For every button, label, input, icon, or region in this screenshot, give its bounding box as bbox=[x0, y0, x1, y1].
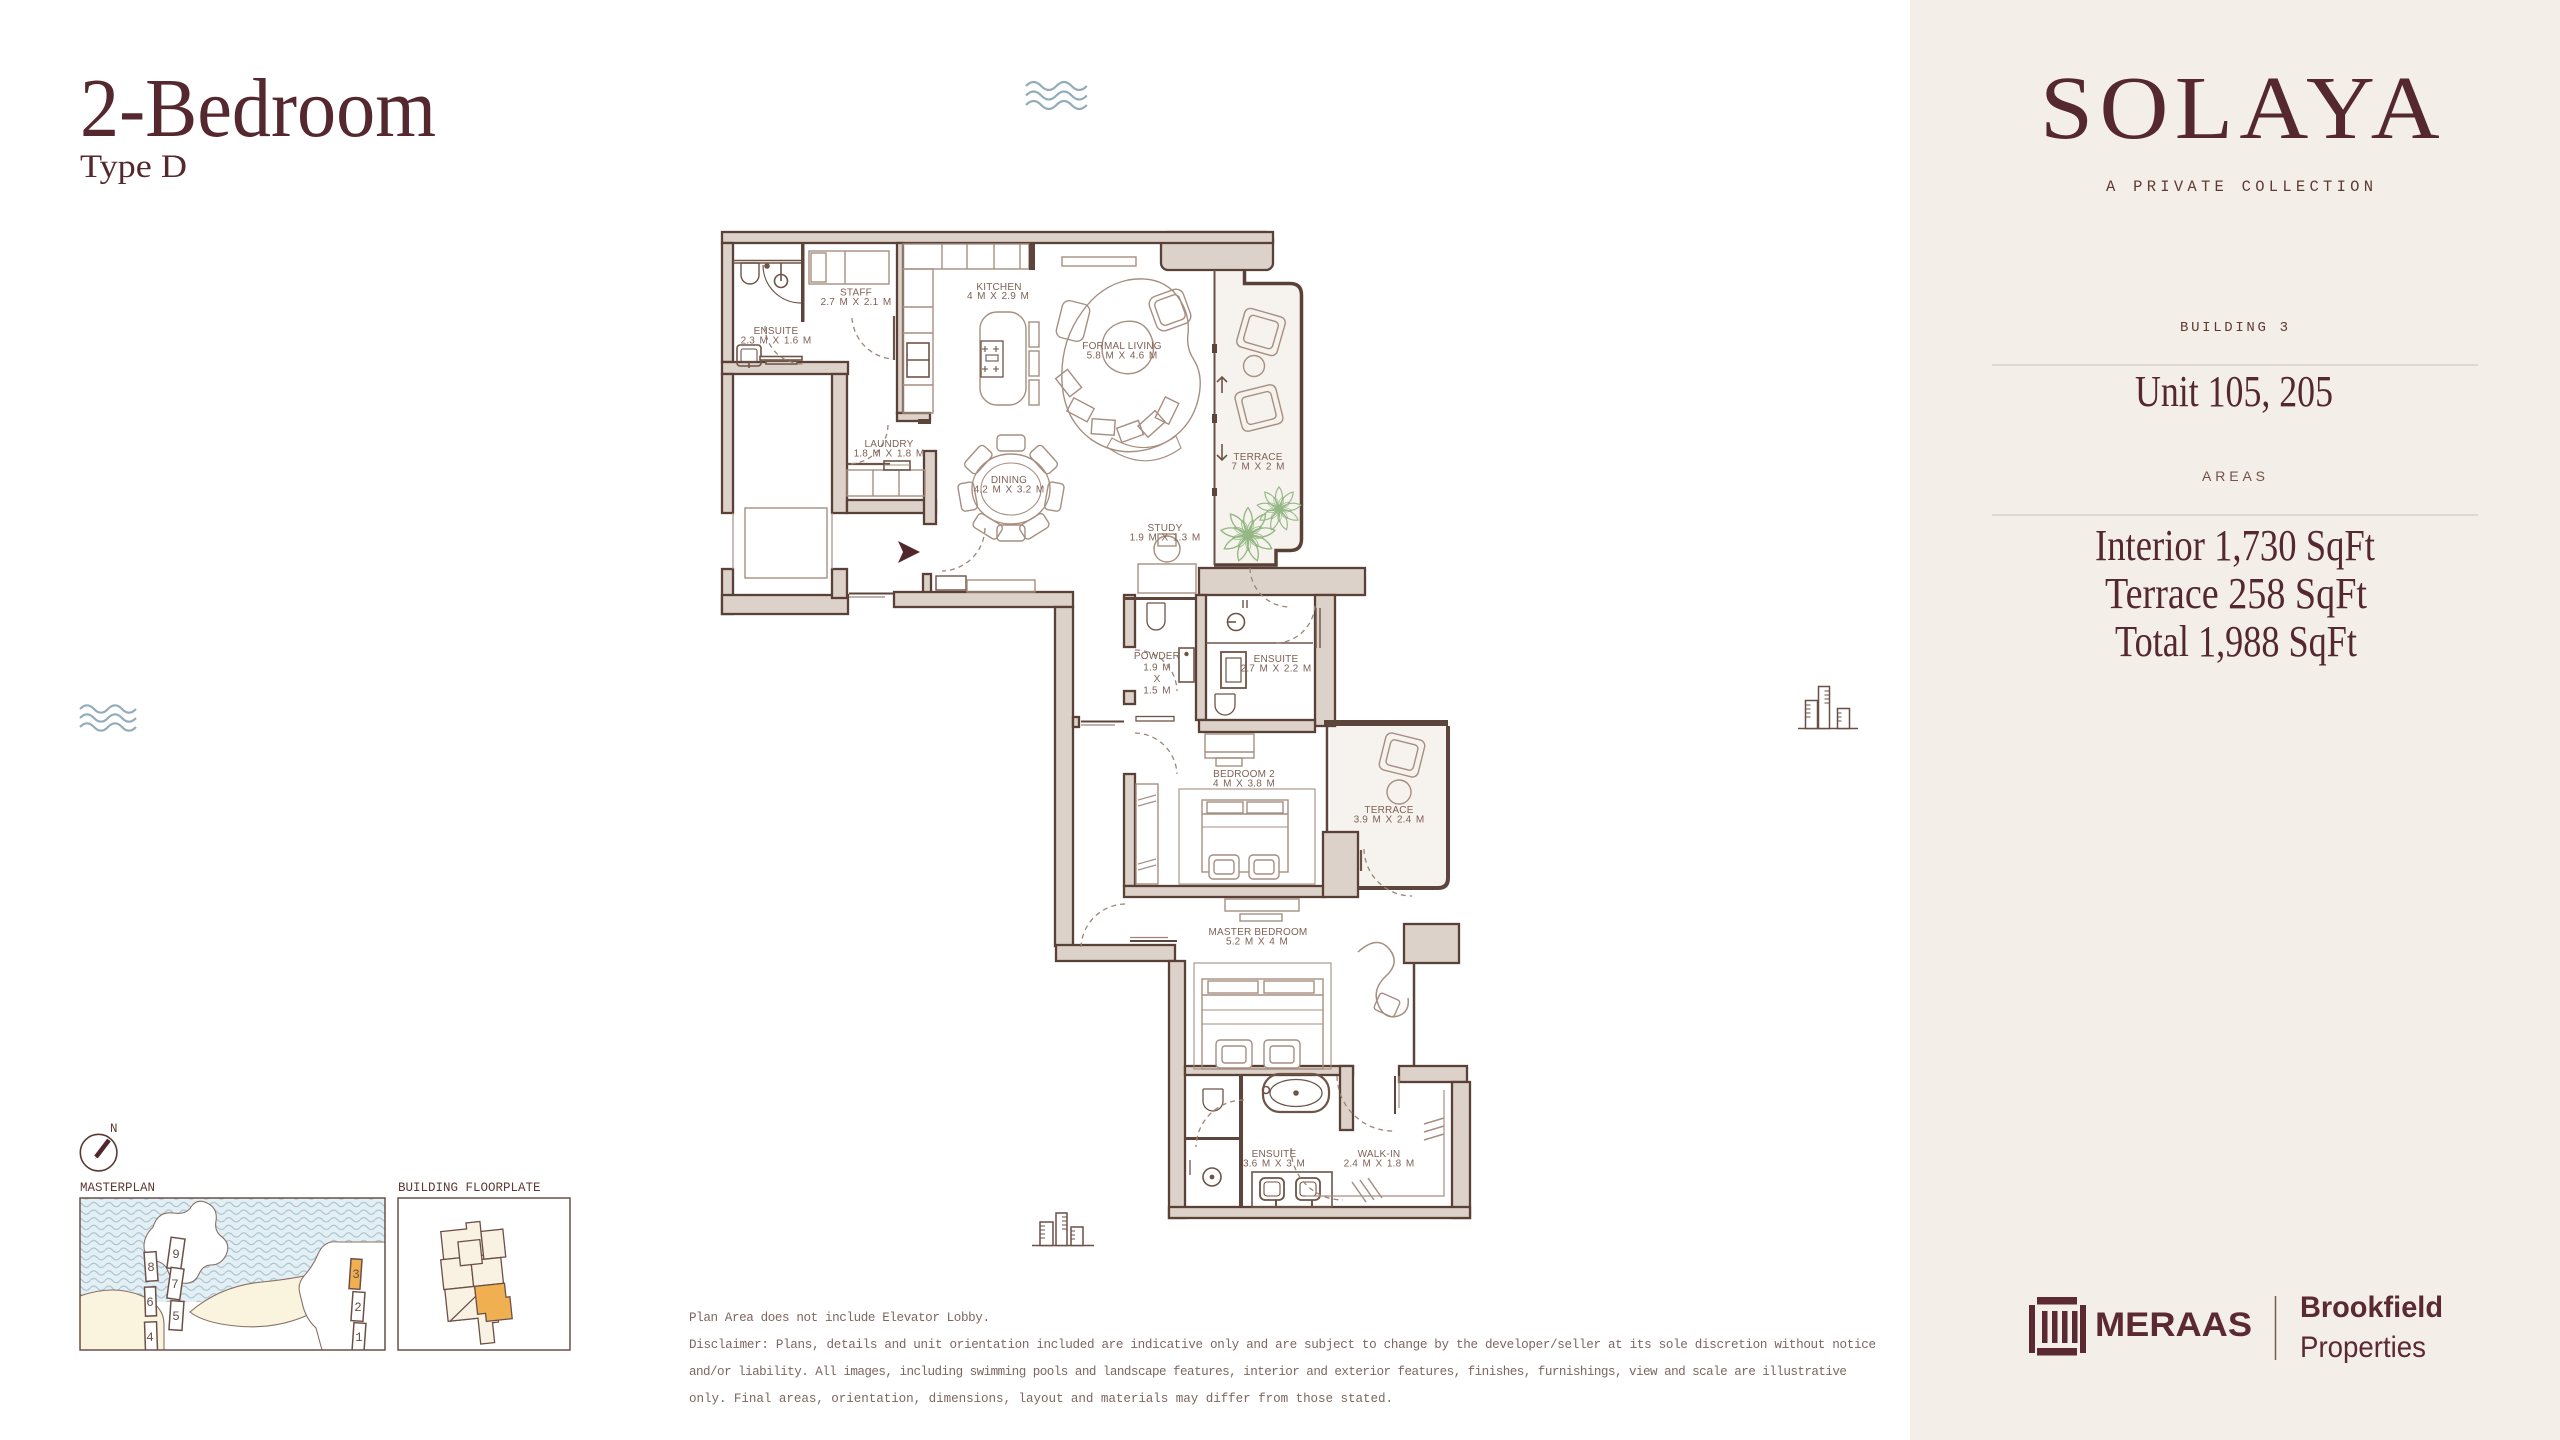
svg-text:3: 3 bbox=[352, 1268, 360, 1282]
svg-text:7: 7 bbox=[171, 1278, 179, 1292]
svg-text:6: 6 bbox=[146, 1296, 154, 1310]
svg-text:Total 1,988 SqFt: Total 1,988 SqFt bbox=[2115, 617, 2357, 666]
svg-text:1.9 M X 1.3 M: 1.9 M X 1.3 M bbox=[1130, 533, 1201, 544]
svg-text:4 M X 2.9 M: 4 M X 2.9 M bbox=[967, 291, 1029, 302]
svg-text:3.9 M X 2.4 M: 3.9 M X 2.4 M bbox=[1354, 815, 1425, 826]
svg-text:Disclaimer: Plans, details and: Disclaimer: Plans, details and unit orie… bbox=[689, 1338, 1876, 1352]
svg-text:Plan Area does not include Ele: Plan Area does not include Elevator Lobb… bbox=[689, 1311, 990, 1325]
svg-text:Unit 105, 205: Unit 105, 205 bbox=[2135, 367, 2333, 416]
svg-text:and/or liability. All images,: and/or liability. All images, including … bbox=[689, 1365, 1847, 1379]
svg-text:2.7 M X 2.1 M: 2.7 M X 2.1 M bbox=[821, 297, 892, 308]
svg-text:Brookfield: Brookfield bbox=[2300, 1291, 2443, 1324]
svg-text:2: 2 bbox=[354, 1301, 362, 1315]
svg-text:X: X bbox=[1154, 674, 1161, 685]
svg-text:MASTERPLAN: MASTERPLAN bbox=[80, 1181, 155, 1195]
svg-text:3.6 M X 3 M: 3.6 M X 3 M bbox=[1243, 1159, 1305, 1170]
svg-text:only. Final areas, orientation: only. Final areas, orientation, dimensio… bbox=[689, 1392, 1393, 1406]
svg-text:8: 8 bbox=[147, 1261, 155, 1275]
svg-text:4: 4 bbox=[146, 1331, 154, 1345]
svg-text:5.8 M X 4.6 M: 5.8 M X 4.6 M bbox=[1087, 351, 1158, 362]
svg-text:1.5 M: 1.5 M bbox=[1143, 686, 1171, 697]
svg-text:Terrace 258 SqFt: Terrace 258 SqFt bbox=[2105, 569, 2367, 618]
svg-text:2.3 M X 1.6 M: 2.3 M X 1.6 M bbox=[741, 336, 812, 347]
svg-text:2.7 M X 2.2 M: 2.7 M X 2.2 M bbox=[1241, 664, 1312, 675]
svg-text:5.2 M X 4 M: 5.2 M X 4 M bbox=[1226, 937, 1288, 948]
svg-text:1.8 M X 1.8 M: 1.8 M X 1.8 M bbox=[854, 449, 925, 460]
svg-text:5: 5 bbox=[172, 1310, 180, 1324]
svg-text:A PRIVATE COLLECTION: A PRIVATE COLLECTION bbox=[2106, 178, 2381, 196]
svg-text:4.2 M X 3.2 M: 4.2 M X 3.2 M bbox=[974, 485, 1045, 496]
svg-text:4 M X 3.8 M: 4 M X 3.8 M bbox=[1213, 779, 1275, 790]
svg-text:1.9 M: 1.9 M bbox=[1143, 663, 1171, 674]
svg-text:N: N bbox=[110, 1122, 118, 1136]
svg-text:Type D: Type D bbox=[80, 149, 187, 185]
svg-text:AREAS: AREAS bbox=[2202, 468, 2268, 484]
svg-text:2-Bedroom: 2-Bedroom bbox=[80, 62, 436, 155]
svg-text:Properties: Properties bbox=[2300, 1331, 2426, 1364]
svg-text:BUILDING FLOORPLATE: BUILDING FLOORPLATE bbox=[398, 1181, 541, 1195]
svg-text:POWDER: POWDER bbox=[1134, 651, 1180, 662]
svg-text:1: 1 bbox=[355, 1331, 363, 1345]
svg-text:SOLAYA: SOLAYA bbox=[2040, 59, 2446, 158]
svg-text:MERAAS: MERAAS bbox=[2095, 1306, 2252, 1344]
svg-text:Interior 1,730 SqFt: Interior 1,730 SqFt bbox=[2095, 521, 2375, 570]
svg-text:2.4 M X 1.8 M: 2.4 M X 1.8 M bbox=[1344, 1159, 1415, 1170]
svg-text:BUILDING 3: BUILDING 3 bbox=[2180, 320, 2291, 336]
svg-text:7 M X 2 M: 7 M X 2 M bbox=[1231, 462, 1284, 473]
svg-text:9: 9 bbox=[172, 1248, 180, 1262]
